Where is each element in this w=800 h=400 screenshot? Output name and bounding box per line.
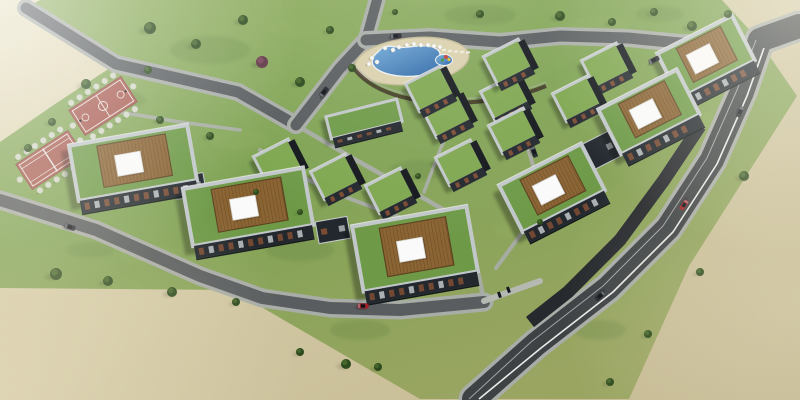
tree-highlight bbox=[342, 360, 348, 366]
grass-patch bbox=[330, 320, 390, 340]
tree-highlight bbox=[538, 219, 541, 222]
roof-skylight bbox=[396, 237, 425, 262]
tree-highlight bbox=[375, 364, 379, 368]
car-glass bbox=[361, 304, 366, 308]
connector-window bbox=[321, 228, 328, 235]
tree-highlight bbox=[297, 349, 301, 353]
site-plan-render bbox=[0, 0, 800, 400]
tree-highlight bbox=[254, 189, 257, 192]
scene-canvas bbox=[0, 0, 800, 400]
car-hood-light bbox=[358, 304, 360, 308]
